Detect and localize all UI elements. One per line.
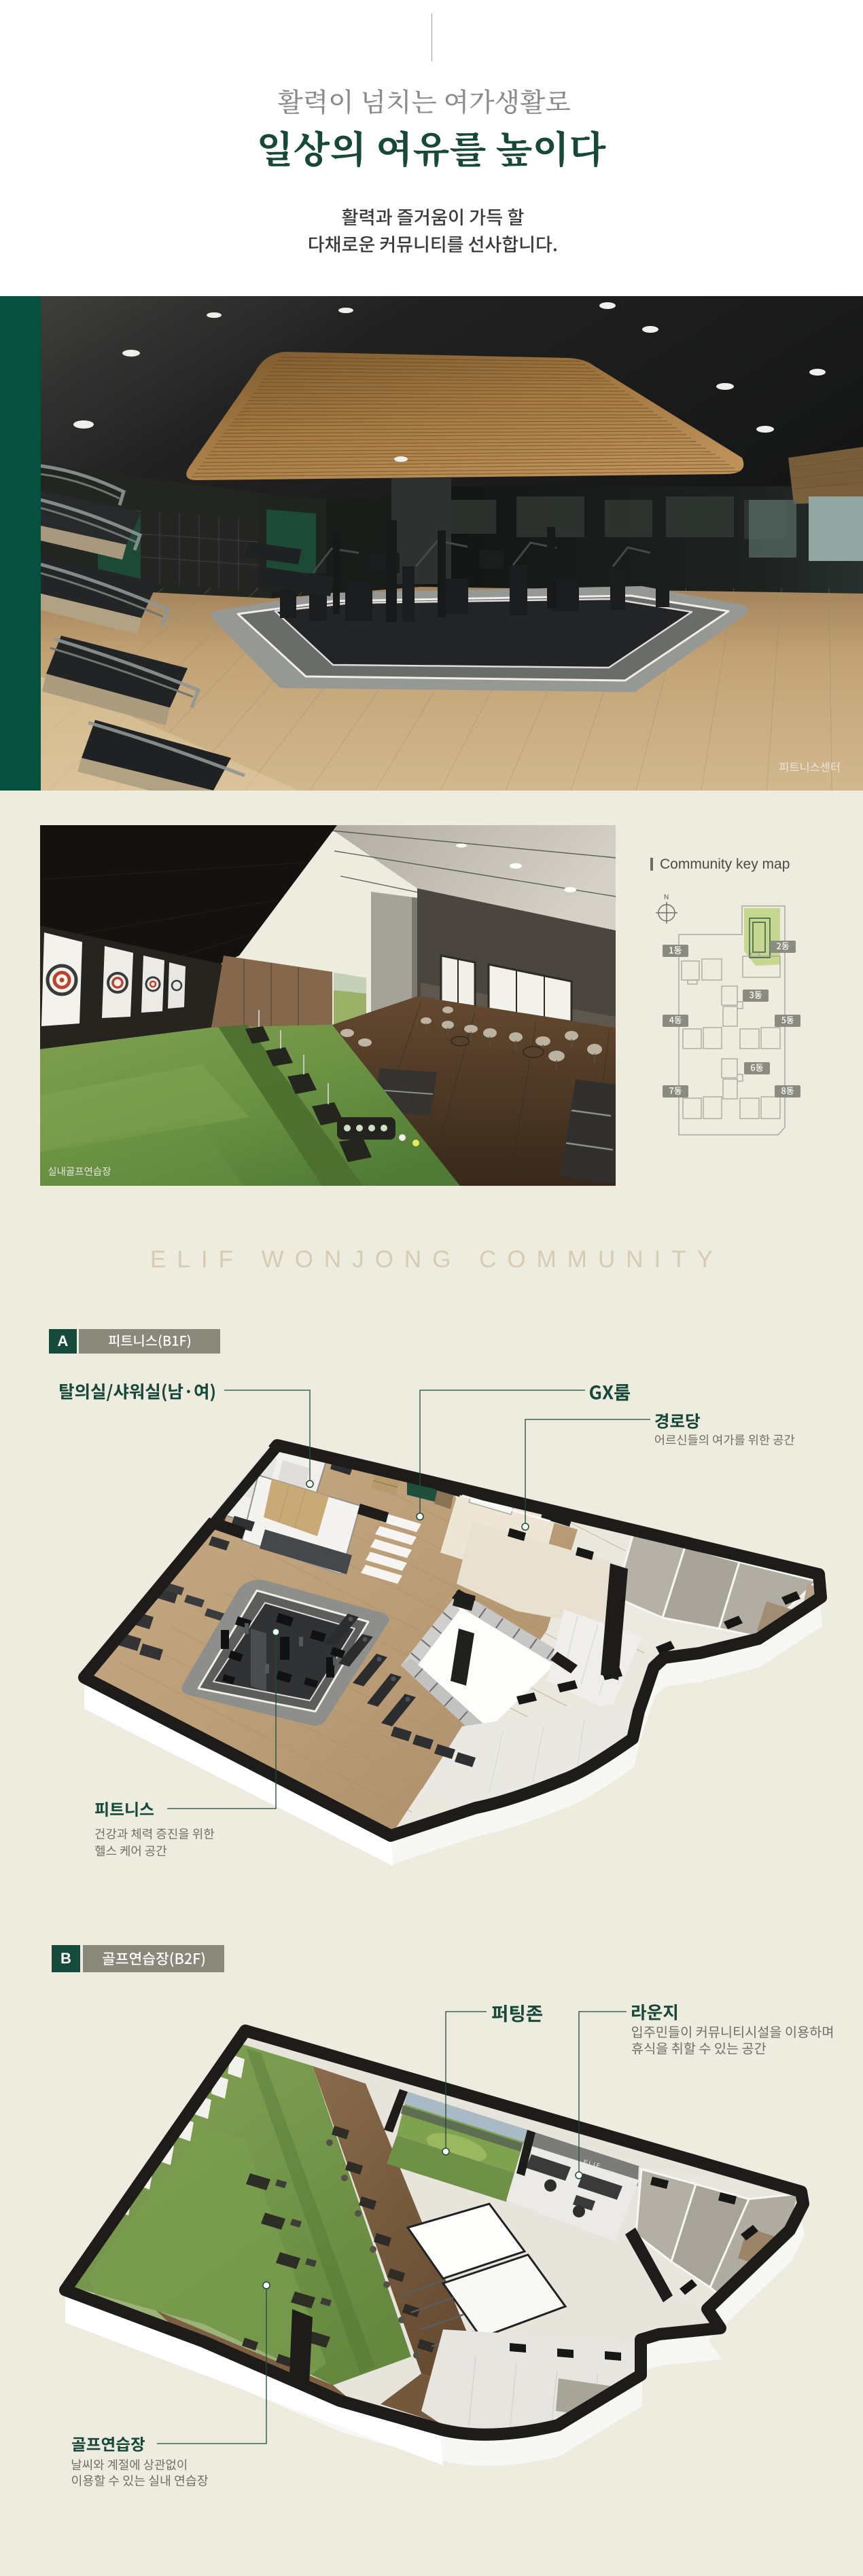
svg-text:N: N bbox=[664, 894, 669, 901]
svg-text:Community key map: Community key map bbox=[660, 856, 790, 872]
